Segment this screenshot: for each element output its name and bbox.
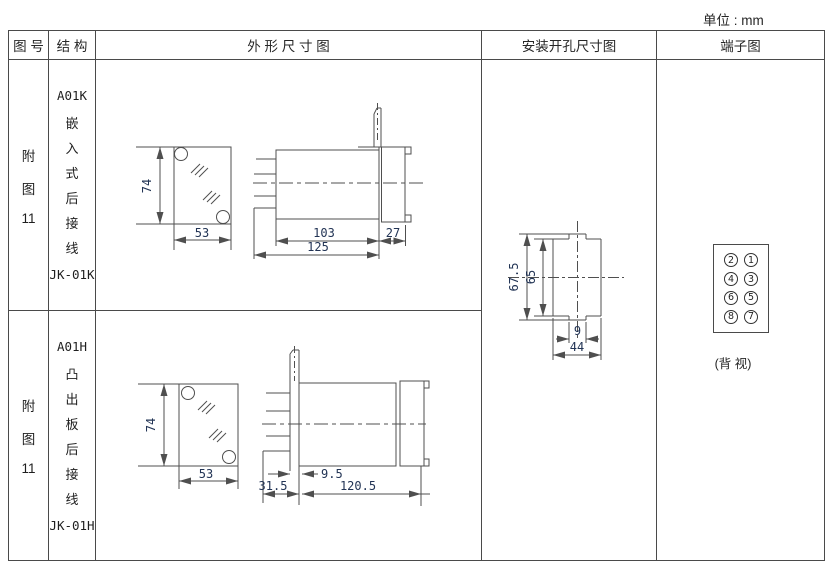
figure-char: 11: [21, 211, 35, 226]
figure-number-row1: 附 图 11: [9, 60, 49, 311]
unit-label: 单位 : mm: [703, 9, 781, 29]
figure-char: 图: [22, 428, 36, 448]
hatch-mark: [198, 401, 215, 414]
dim-outer-height: 67.5: [507, 263, 521, 292]
dim-total-depth: 125: [307, 240, 329, 254]
header-figure-number: 图 号: [9, 31, 49, 60]
header-terminal-diagram: 端子图: [657, 31, 824, 60]
model-label: A01H: [57, 339, 87, 354]
side-view: 9.5 31.5 120.5: [259, 346, 430, 506]
dim-width: 53: [199, 467, 213, 481]
hatch-mark: [203, 191, 220, 204]
header-outline-dimensions: 外 形 尺 寸 图: [96, 31, 482, 60]
front-view: 74 53: [138, 384, 238, 489]
side-view: 103 27 125: [253, 103, 423, 259]
terminal-pin: 4: [724, 272, 738, 286]
outline-drawing-jk01h: 74 53: [96, 311, 482, 560]
dim-height: 74: [140, 179, 154, 193]
figure-char: 附: [22, 395, 36, 415]
hatch-mark: [191, 164, 208, 177]
structure-row2: A01H 凸 出 板 后 接 线 JK-01H: [49, 311, 96, 560]
type-code-label: JK-01K: [49, 267, 94, 282]
figure-char: 图: [22, 178, 36, 198]
structure-description: 凸 出 板 后 接 线: [65, 364, 78, 508]
mounting-hole-svg: 67.5 65 9 44: [482, 60, 657, 560]
terminal-box: 2 1 4 3 6 5 8 7: [713, 244, 769, 333]
front-view: 74 53: [136, 147, 231, 250]
dim-bezel-depth: 27: [386, 226, 400, 240]
structure-description: 嵌 入 式 后 接 线: [65, 113, 78, 257]
structure-row1: A01K 嵌 入 式 后 接 线 JK-01K: [49, 60, 96, 311]
model-label: A01K: [57, 88, 87, 103]
figure-char: 11: [21, 461, 35, 476]
dim-front-depth: 120.5: [340, 479, 376, 493]
outline-drawing-jk01k: 74 53: [96, 60, 482, 311]
type-code-label: JK-01H: [49, 518, 94, 533]
dim-hole-width: 44: [570, 340, 584, 354]
mounting-hole-drawing: 67.5 65 9 44: [482, 60, 657, 560]
outline-drawing-jk01h-svg: 74 53: [96, 311, 482, 560]
figure-char: 附: [22, 145, 36, 165]
figure-number-row2: 附 图 11: [9, 311, 49, 560]
terminal-pin: 3: [744, 272, 758, 286]
header-structure: 结 构: [49, 31, 96, 60]
terminal-pin: 1: [744, 253, 758, 267]
outline-drawing-jk01k-svg: 74 53: [96, 60, 482, 311]
terminal-pin: 8: [724, 310, 738, 324]
dim-hole-height: 65: [524, 270, 538, 284]
terminal-pin: 6: [724, 291, 738, 305]
dim-rear-depth: 31.5: [259, 479, 288, 493]
header-mounting-hole-dimensions: 安装开孔尺寸图: [482, 31, 657, 60]
terminal-diagram: 2 1 4 3 6 5 8 7 (背 视): [657, 60, 824, 560]
terminal-pin: 7: [744, 310, 758, 324]
hatch-mark: [209, 429, 226, 442]
dim-notch-width: 9: [574, 324, 581, 338]
terminal-pin: 5: [744, 291, 758, 305]
dim-body-depth: 103: [313, 226, 335, 240]
rear-view-caption: (背 视): [683, 353, 783, 372]
dimension-table: 图 号 结 构 外 形 尺 寸 图 安装开孔尺寸图 端子图 附 图 11 A01…: [8, 30, 825, 561]
dim-height: 74: [144, 418, 158, 432]
terminal-pin: 2: [724, 253, 738, 267]
dim-width: 53: [195, 226, 209, 240]
